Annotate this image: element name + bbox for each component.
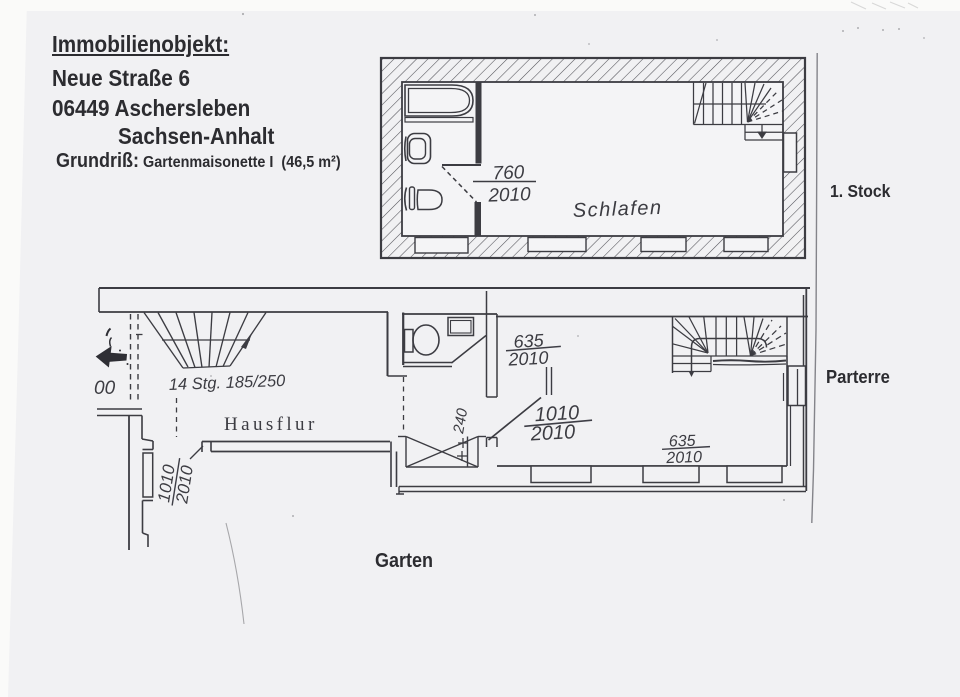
svg-text:2010: 2010 xyxy=(529,421,576,445)
svg-text:2010: 2010 xyxy=(665,449,702,467)
svg-text:Hausflur: Hausflur xyxy=(224,414,318,435)
svg-text:2010: 2010 xyxy=(487,184,531,207)
svg-text:240: 240 xyxy=(450,406,471,435)
svg-text:00: 00 xyxy=(94,378,116,399)
svg-text:2010: 2010 xyxy=(507,348,549,370)
svg-text:14 Stg. 185/250: 14 Stg. 185/250 xyxy=(169,372,287,394)
svg-text:760: 760 xyxy=(492,162,525,184)
svg-text:Schlafen: Schlafen xyxy=(572,197,663,222)
